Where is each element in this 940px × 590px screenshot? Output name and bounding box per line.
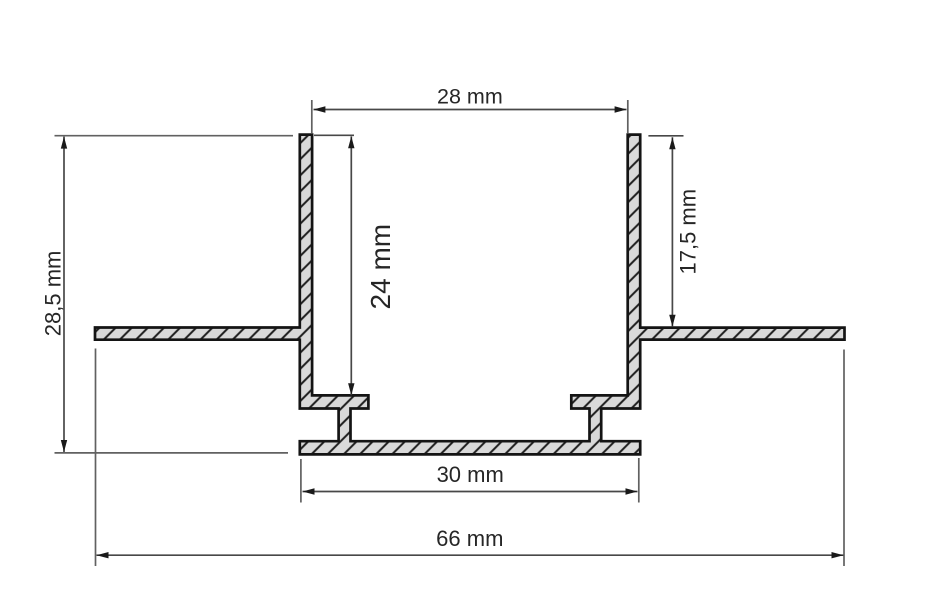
svg-text:17,5 mm: 17,5 mm <box>675 189 700 275</box>
svg-text:66 mm: 66 mm <box>436 526 503 551</box>
svg-text:28 mm: 28 mm <box>437 84 503 108</box>
svg-text:24 mm: 24 mm <box>365 224 396 310</box>
svg-text:28,5 mm: 28,5 mm <box>41 251 66 337</box>
svg-text:30 mm: 30 mm <box>437 462 504 487</box>
